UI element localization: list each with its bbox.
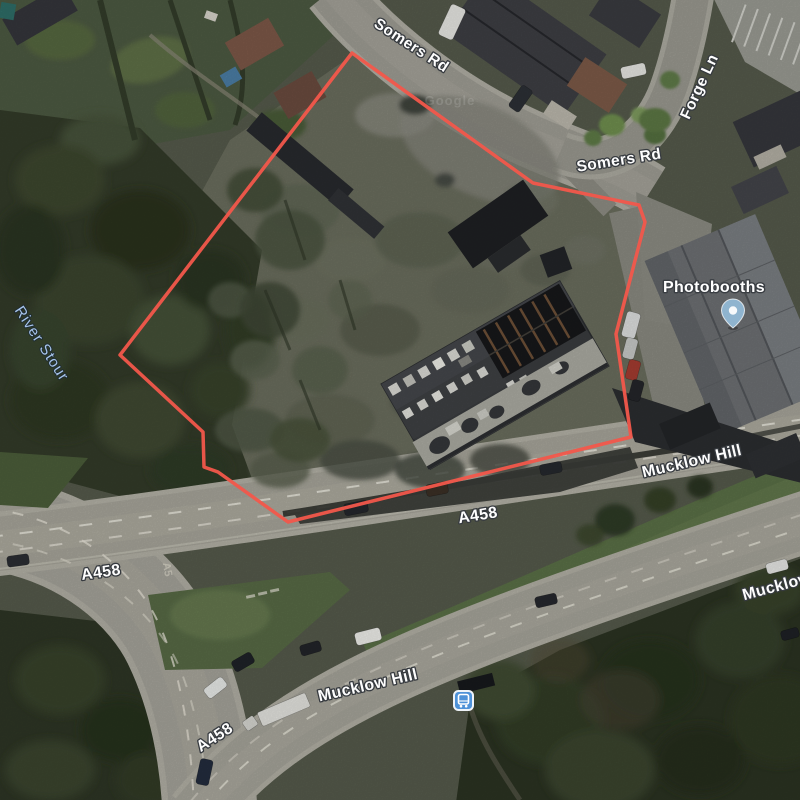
satellite-map-canvas[interactable]: Google A5 Somers Rd Somers Rd Forge Ln R…	[0, 0, 800, 800]
poi-label-photobooths[interactable]: Photobooths	[663, 279, 765, 296]
imagery-watermark: Google	[425, 93, 476, 108]
road-paint-marking: A5	[160, 562, 174, 578]
bus-stop-icon[interactable]	[454, 691, 473, 710]
